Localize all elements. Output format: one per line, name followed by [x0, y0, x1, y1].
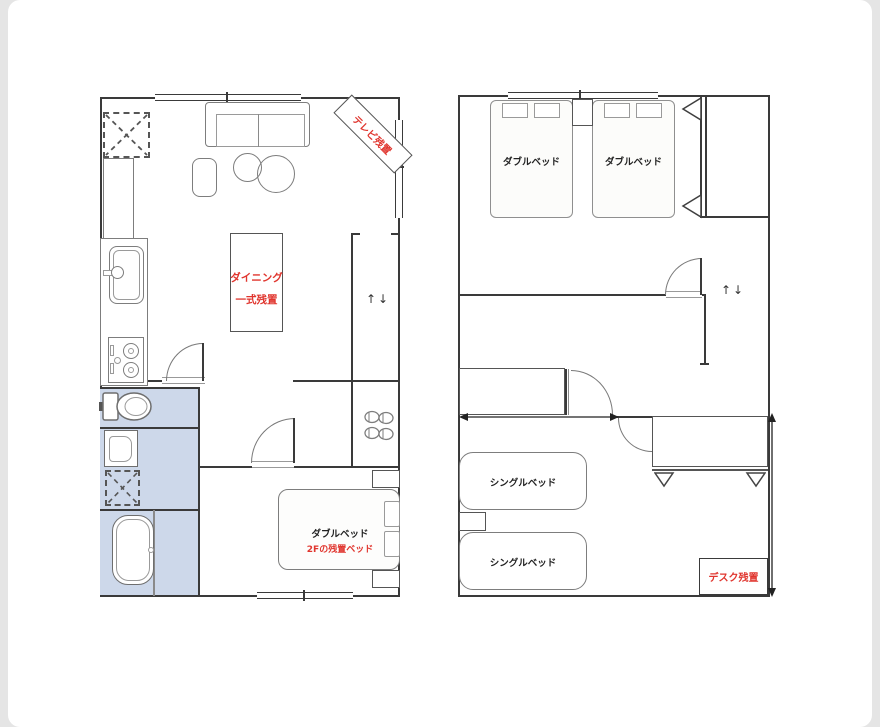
closet-middle	[459, 368, 565, 415]
dining-note-line1: ダイニング	[230, 270, 283, 285]
stairs-label-2f: ↑↓	[719, 283, 747, 297]
nightstand	[459, 512, 486, 531]
desk-leg-arrows-icon	[654, 472, 766, 488]
nightstand	[372, 570, 400, 588]
bathtub-inner	[116, 519, 150, 581]
desk	[652, 416, 768, 467]
bathtub-knob	[148, 547, 154, 553]
closet-door-arrows-icon	[680, 97, 702, 219]
wall-tick	[391, 233, 399, 235]
pillow-icon	[534, 103, 560, 118]
stove-grate	[110, 345, 114, 356]
window	[257, 592, 353, 599]
sofa-divider	[258, 114, 259, 147]
pillow-icon	[604, 103, 630, 118]
faucet-icon	[111, 266, 124, 279]
nightstand	[572, 99, 593, 126]
bedroom-wall	[294, 466, 400, 468]
burner-dot	[128, 348, 134, 354]
slippers-icon	[362, 407, 394, 445]
closet-top-right	[700, 95, 770, 218]
window	[508, 92, 658, 99]
wall-tick	[700, 363, 709, 365]
door-panel	[568, 369, 569, 415]
window-tick	[303, 590, 305, 601]
floor-plan-scene: テレビ残置 ダイニング 一式残置 ↑↓ ダブルベッド 2Fの残置ベッド	[0, 0, 880, 727]
washing-machine-icon	[105, 470, 140, 506]
double-bed-1-label: ダブルベッド	[490, 154, 573, 168]
refrigerator-icon	[103, 112, 150, 158]
stove-knob	[114, 357, 121, 364]
double-bed-2-label: ダブルベッド	[592, 154, 675, 168]
closet-inner-edge	[705, 97, 707, 216]
double-bed-note-1f: 2Fの残置ベッド	[288, 542, 392, 555]
door-panel	[700, 258, 702, 295]
kitchen-counter	[103, 158, 134, 240]
single-bed-1-label: シングルベッド	[459, 475, 587, 489]
dimension-arrow-horizontal	[459, 410, 619, 424]
wall-stub	[148, 380, 162, 382]
wall-tick	[353, 233, 360, 235]
sofa-seat	[216, 114, 305, 147]
desk-note-box: デスク残置	[699, 558, 768, 595]
pillow-icon	[502, 103, 528, 118]
desk-front-edge	[652, 469, 768, 471]
wall	[100, 427, 200, 429]
wall	[198, 388, 200, 596]
door-panel	[565, 369, 567, 415]
pillow-icon	[636, 103, 662, 118]
dining-note-line2: 一式残置	[230, 292, 283, 307]
bedroom-wall	[199, 466, 252, 468]
desk-note-label: デスク残置	[709, 569, 759, 584]
toilet-icon	[98, 389, 154, 425]
nightstand	[372, 470, 400, 488]
stove-grate	[110, 363, 114, 374]
wall	[100, 509, 200, 511]
single-bed-2-label: シングルベッド	[459, 555, 587, 569]
burner-dot	[128, 367, 134, 373]
double-bed-label-1f: ダブルベッド	[290, 526, 390, 540]
washbasin-bowl	[109, 436, 132, 462]
wall	[458, 294, 666, 296]
door-panel	[293, 418, 295, 463]
pillow-icon	[384, 501, 400, 527]
door-panel	[202, 343, 204, 381]
side-table-icon	[192, 158, 217, 197]
round-table-icon	[257, 155, 295, 193]
stair-wall	[351, 233, 353, 467]
wall	[704, 294, 706, 365]
stairs-label-1f: ↑↓	[364, 292, 392, 306]
window	[155, 94, 301, 101]
wall	[293, 380, 400, 382]
